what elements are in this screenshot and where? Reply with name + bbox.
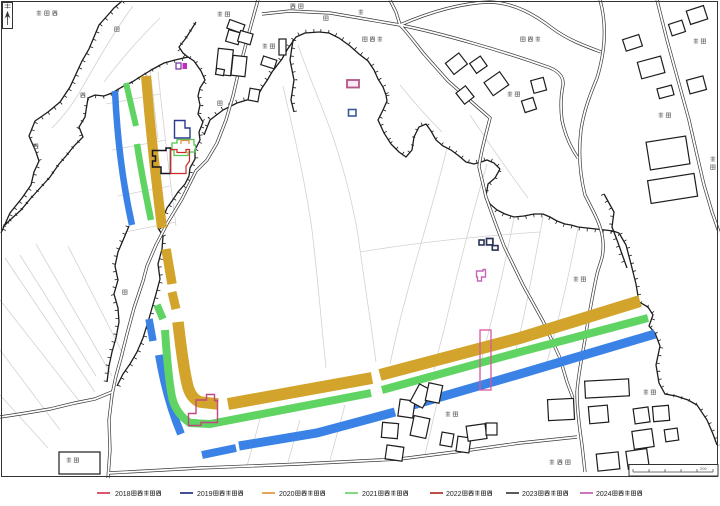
- svg-text:2019: 2019: [197, 491, 213, 498]
- svg-text:2020: 2020: [279, 491, 295, 498]
- svg-text:2022: 2022: [446, 491, 462, 498]
- svg-text:200: 200: [700, 466, 707, 471]
- svg-text:2023: 2023: [522, 491, 538, 498]
- svg-text:2018: 2018: [115, 491, 131, 498]
- svg-text:2021: 2021: [362, 491, 378, 498]
- svg-text:2024: 2024: [596, 491, 612, 498]
